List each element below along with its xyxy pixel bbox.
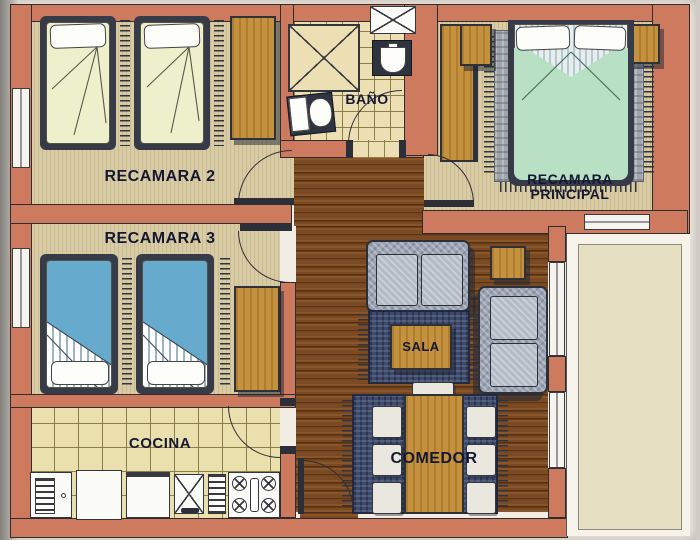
bed-recamara3-right <box>136 254 214 394</box>
kitchen-sink <box>174 474 204 514</box>
dining-chair <box>466 406 496 438</box>
sink-tap <box>388 43 398 48</box>
wall-sala-east-a <box>548 226 566 262</box>
dining-chair <box>372 406 402 438</box>
sofa-cushion <box>421 254 463 306</box>
closet-recamara3 <box>234 286 280 392</box>
mattress <box>46 260 112 388</box>
label-line1: RECAMARA <box>472 172 668 187</box>
rug-fringe <box>470 314 480 380</box>
shower <box>288 24 360 92</box>
bed-recamara3-left <box>40 254 118 394</box>
door-leaf-recamara3 <box>240 224 292 231</box>
window-principal <box>584 214 650 230</box>
toilet-tank <box>288 97 309 133</box>
room-label-comedor: COMEDOR <box>354 450 514 470</box>
kitchen-counter <box>76 470 122 520</box>
sink-basin <box>380 47 406 73</box>
stove-burner <box>232 498 247 513</box>
dining-chair <box>466 482 496 514</box>
stove-burner <box>261 476 276 491</box>
pillow <box>516 25 571 51</box>
wall-recamara3-east-b <box>280 452 296 518</box>
fridge-handle <box>61 493 66 498</box>
patio <box>578 244 682 530</box>
sofa-cushion <box>490 296 538 340</box>
floor-hall-upper <box>294 156 424 226</box>
window-sala-1 <box>549 262 565 356</box>
carpet-fringe <box>122 258 132 388</box>
stove-burner <box>232 476 247 491</box>
nightstand-left <box>460 24 492 66</box>
sink-faucet <box>181 508 199 513</box>
room-label-principal: RECAMARA PRINCIPAL <box>472 172 668 208</box>
label-line2: PRINCIPAL <box>472 187 668 202</box>
dining-chair <box>372 482 402 514</box>
foot-pillow <box>147 361 205 385</box>
sofa-cushion <box>376 254 418 306</box>
nightstand-right <box>630 24 660 64</box>
pillow <box>144 23 201 49</box>
sofa-cushion <box>490 343 538 387</box>
room-label-cocina: COCINA <box>60 436 260 456</box>
window-recamara3 <box>12 248 30 328</box>
fridge-vent <box>35 478 55 514</box>
side-table <box>490 246 526 280</box>
carpet-fringe <box>214 20 224 146</box>
wall-sala-east-b <box>548 356 566 392</box>
closet-recamara2 <box>230 16 276 140</box>
wall-recamara-divider <box>10 204 292 224</box>
stove-center <box>250 478 259 512</box>
pillow <box>50 23 107 49</box>
room-label-bano: BAÑO <box>322 92 412 108</box>
sofa <box>366 240 470 312</box>
room-label-recamara3: RECAMARA 3 <box>60 230 260 250</box>
bed-principal <box>508 20 634 186</box>
bed-recamara2-right <box>134 16 210 150</box>
wall-recamara3-east-a <box>280 282 296 396</box>
foot-pillow <box>51 361 109 385</box>
door-jamb <box>280 398 296 406</box>
stove-burner <box>261 498 276 513</box>
room-label-sala: SALA <box>402 340 439 354</box>
dishwasher <box>126 472 170 518</box>
window-sala-2 <box>549 392 565 468</box>
coffee-table: SALA <box>390 324 452 370</box>
pillow <box>574 25 627 51</box>
drainboard <box>208 474 226 514</box>
floor-plan: RECAMARA 2 RECAMARA 3 BAÑO <box>0 0 700 540</box>
stove <box>228 472 280 518</box>
mattress <box>142 260 208 388</box>
rug-fringe <box>358 314 368 380</box>
door-jamb <box>280 446 296 454</box>
vent-duct <box>370 6 416 34</box>
refrigerator <box>30 472 72 518</box>
bed-recamara2-left <box>40 16 116 150</box>
room-label-recamara2: RECAMARA 2 <box>60 168 260 188</box>
wall-bottom <box>10 518 568 538</box>
window-recamara2 <box>12 88 30 168</box>
loveseat <box>478 286 548 394</box>
wall-sala-east-c <box>548 468 566 518</box>
carpet-fringe <box>220 258 230 388</box>
carpet-fringe <box>120 20 130 146</box>
bathroom-sink <box>372 40 412 76</box>
